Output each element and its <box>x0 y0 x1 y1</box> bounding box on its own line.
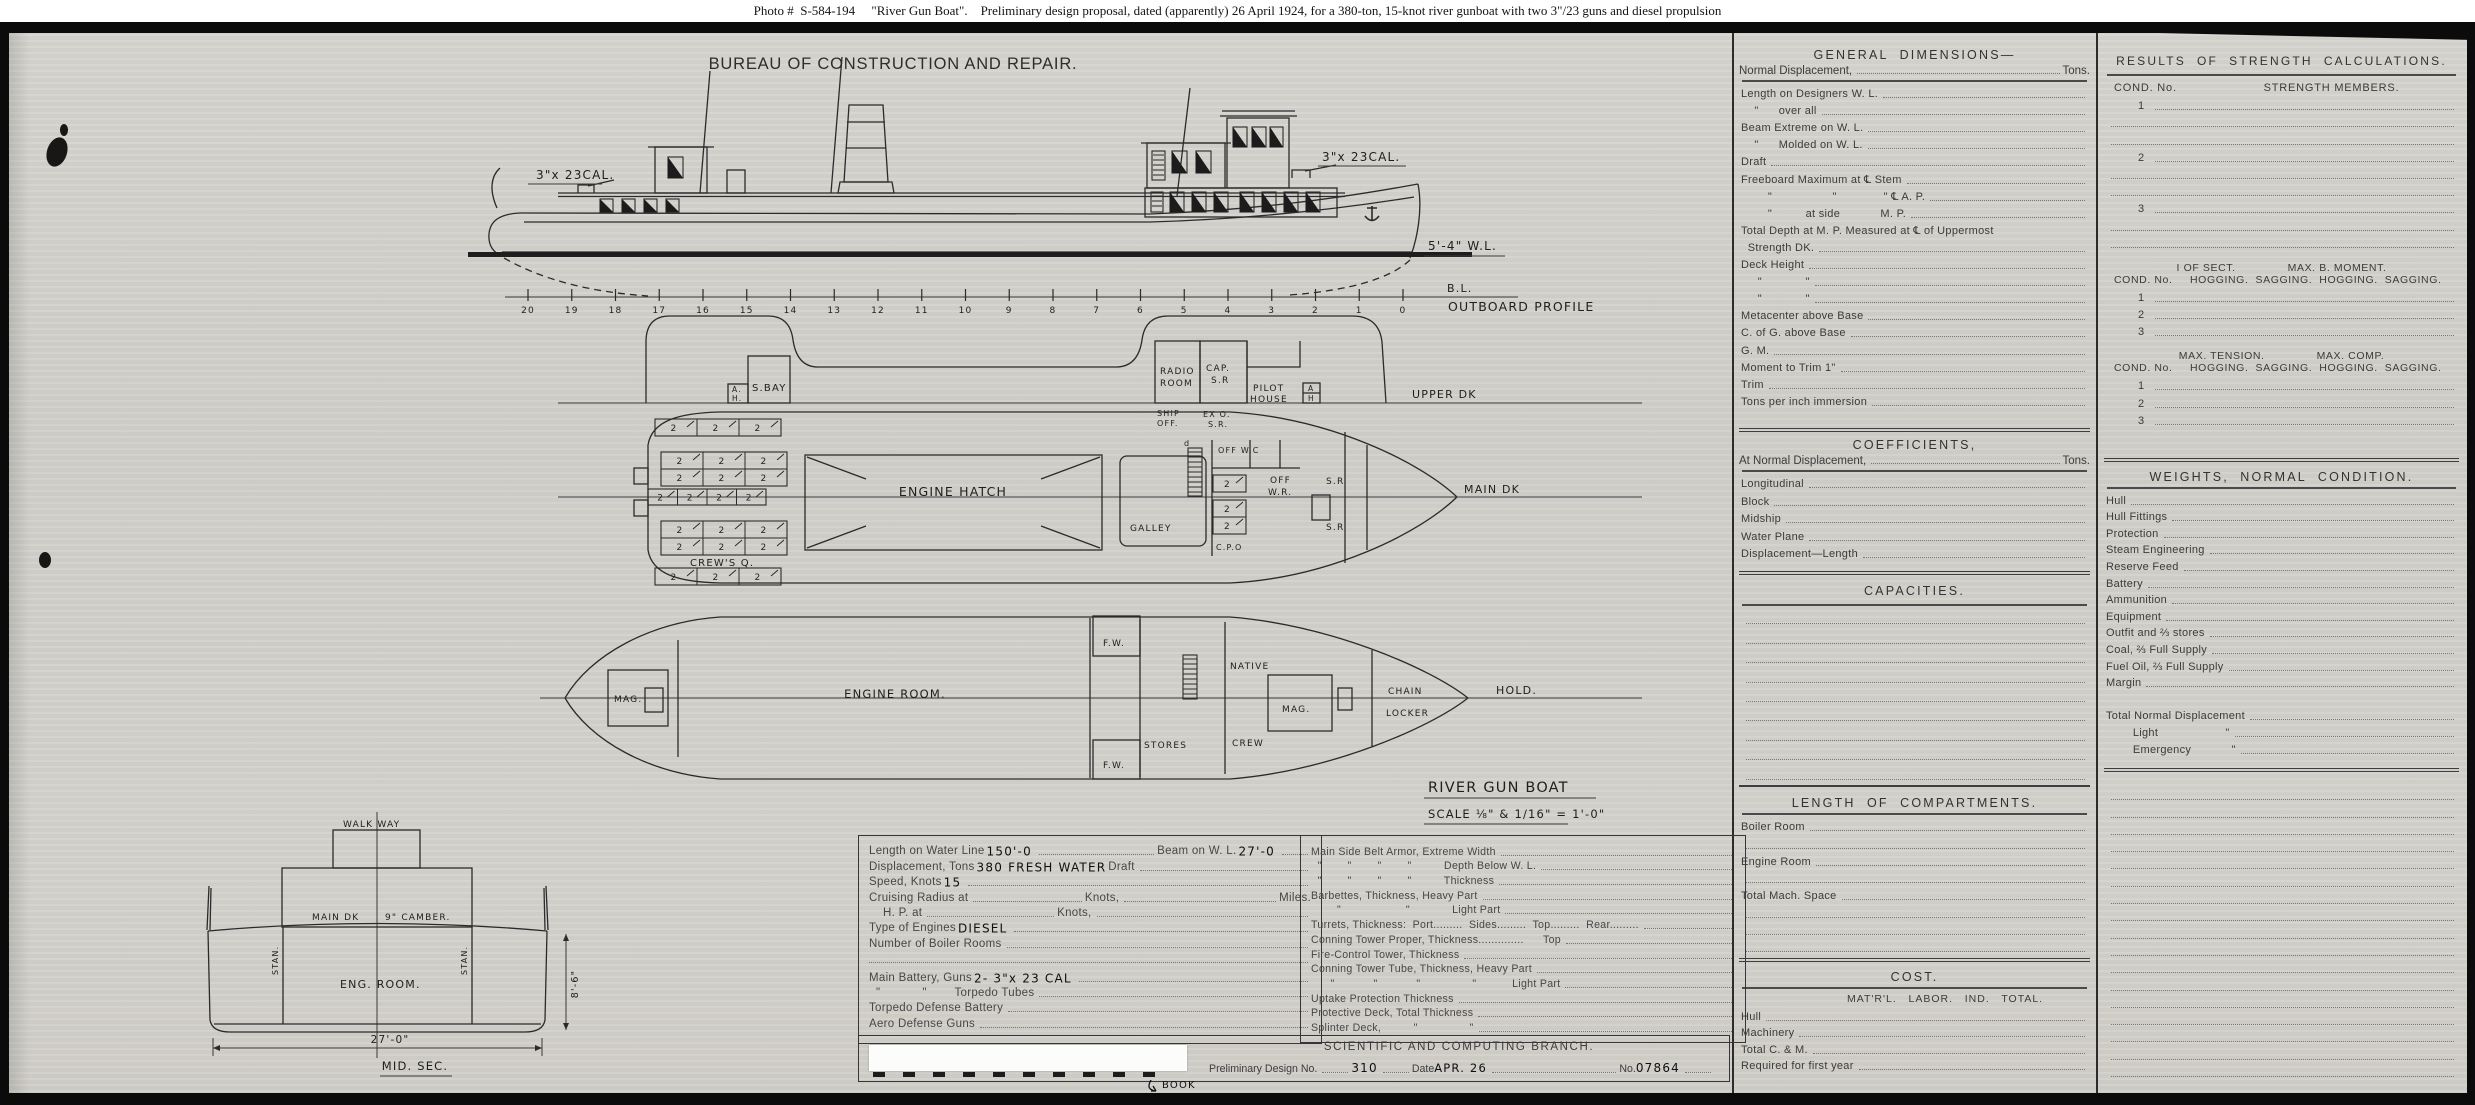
berth-mark: 2 <box>1224 505 1231 515</box>
blank-field <box>1644 928 1732 929</box>
form-row: Steam Engineering <box>2104 541 2459 558</box>
form-row: H. P. at Knots, <box>869 905 1311 920</box>
blank-field <box>1478 1016 1732 1017</box>
form-row: Uptake Protection Thickness <box>1309 991 1737 1006</box>
max-b-moment-header: MAX. B. MOMENT. <box>2288 262 2387 274</box>
book-note-text: BOOK <box>1162 1080 1196 1091</box>
max-tension-header: MAX. TENSION. <box>2179 350 2265 362</box>
field-label: Beam Extreme on W. L. <box>1741 122 1863 135</box>
form-row <box>2104 130 2459 147</box>
blank-field <box>1815 302 2085 303</box>
blank-field <box>1459 1002 1732 1003</box>
field-label: Speed, Knots <box>869 876 942 889</box>
blank-field <box>1771 165 2085 166</box>
station-number: 3 <box>1268 306 1275 316</box>
blank-field <box>2210 636 2454 637</box>
berth-mark: 2 <box>755 424 762 434</box>
ship-name: RIVER GUN BOAT <box>1428 780 1569 796</box>
hold-plan <box>540 616 1642 779</box>
field-label: Strength DK. <box>1741 242 1814 255</box>
blank-field <box>2111 817 2454 818</box>
panel-title: GENERAL DIMENSIONS— <box>1739 38 2090 62</box>
form-row: Turrets, Thickness: Port......... Sides.… <box>1309 917 1737 932</box>
berth-mark: 2 <box>713 424 720 434</box>
radio-room-label-2: ROOM <box>1160 379 1193 389</box>
form-row <box>2104 959 2459 976</box>
scan-blemishes <box>39 124 71 568</box>
blank-field <box>2111 144 2454 145</box>
hand-drawn-arrow-icon <box>1142 1080 1162 1095</box>
field-label: Margin <box>2106 677 2141 690</box>
form-row <box>1739 666 2090 685</box>
crew-label: CREW <box>1232 739 1264 749</box>
field-label: Main Battery, Guns <box>869 972 972 985</box>
form-row <box>2104 1063 2459 1080</box>
captain-stateroom-label-1: CAP. <box>1206 364 1230 374</box>
field-label: Number of Boiler Rooms <box>869 938 1002 951</box>
blank-field <box>2111 990 2454 991</box>
form-row: " " Torpedo Tubes <box>869 985 1311 1000</box>
ship-office-label-2: OFF. <box>1157 419 1179 428</box>
blank-field <box>2111 1041 2454 1042</box>
field-label: " " Light Part <box>1311 904 1500 917</box>
blank-field <box>2111 230 2454 231</box>
form-row: Block <box>1739 491 2090 508</box>
panel-weights: WEIGHTS, NORMAL CONDITION. HullHull Fitt… <box>2104 462 2459 772</box>
form-row: Protection <box>2104 524 2459 541</box>
station-number: 11 <box>915 306 929 316</box>
form-row: Displacement, Tons 380 FRESH WATER Draft <box>869 858 1311 873</box>
field-label: Battery <box>2106 578 2143 591</box>
panel-title: COST. <box>1739 962 2090 984</box>
blank-field <box>2155 335 2454 336</box>
form-row <box>2104 216 2459 233</box>
station-ruler: 20191817161514131211109876543210 <box>521 289 1406 316</box>
blank-field <box>2210 553 2454 554</box>
field-label: 3 <box>2138 415 2150 428</box>
blank-field <box>2250 719 2454 720</box>
blank-field <box>2155 212 2454 213</box>
field-label: Fuel Oil, ⅔ Full Supply <box>2106 661 2224 674</box>
field-label: Midship <box>1741 513 1781 526</box>
walkway-label: WALK WAY <box>343 820 400 830</box>
scale-note: SCALE ⅛" & 1/16" = 1'-0" <box>1428 807 1605 821</box>
blank-field <box>1851 336 2085 337</box>
station-number: 13 <box>827 306 841 316</box>
field-label: " " " " Light Part <box>1311 978 1560 991</box>
form-row: Metacenter above Base <box>1739 306 2090 323</box>
field-label: Draft <box>1108 861 1134 874</box>
galley-label: GALLEY <box>1130 524 1172 534</box>
stanchion-label-left: STAN. <box>271 946 280 975</box>
field-label: Knots, <box>1057 907 1091 920</box>
blank-field <box>2155 161 2454 162</box>
field-label: 2 <box>2138 309 2150 322</box>
chain-locker-label-1: CHAIN <box>1388 687 1423 697</box>
form-row: Length on Designers W. L. <box>1739 84 2090 101</box>
station-number: 18 <box>609 306 623 316</box>
photo-border-right <box>2467 22 2475 1105</box>
form-row <box>2104 1045 2459 1062</box>
field-value: DIESEL <box>956 922 1009 936</box>
form-row <box>2104 976 2459 993</box>
berth-mark: 2 <box>1224 522 1231 532</box>
blank-field <box>2212 653 2454 654</box>
berth-mark: 2 <box>657 494 664 504</box>
station-number: 4 <box>1225 306 1232 316</box>
baseline-label: B.L. <box>1447 282 1472 295</box>
form-row: 3 <box>2104 411 2459 428</box>
form-row: Battery <box>2104 574 2459 591</box>
main-deck-label: MAIN DK <box>1464 483 1520 496</box>
ah-label-bottom: H. <box>732 394 742 403</box>
blank-field <box>1746 759 2085 760</box>
berth-mark: 2 <box>677 526 684 536</box>
midship-section <box>207 812 569 1058</box>
field-label: Cruising Radius at <box>869 892 968 905</box>
panel-title: LENGTH OF COMPARTMENTS. <box>1739 788 2090 810</box>
form-row: Engine Room <box>1739 852 2090 869</box>
form-row <box>2104 803 2459 820</box>
form-row: " " <box>1739 272 2090 289</box>
form-row <box>2104 1011 2459 1028</box>
blank-field <box>1769 388 2085 389</box>
panel-title: CAPACITIES. <box>1739 575 2090 598</box>
berth-mark: 2 <box>713 573 720 583</box>
form-row <box>1739 686 2090 705</box>
sickbay-label: S.BAY <box>752 383 787 394</box>
form-row: Aero Defense Guns <box>869 1015 1311 1030</box>
form-row: Total Mach. Space <box>1739 886 2090 903</box>
form-row <box>2104 182 2459 199</box>
field-value: 380 FRESH WATER <box>975 860 1109 874</box>
form-row: " " " ℄ A. P. <box>1739 187 2090 204</box>
berth-mark: 2 <box>671 424 678 434</box>
blank-field <box>2111 1007 2454 1008</box>
station-number: 16 <box>696 306 710 316</box>
form-row: " " " " Thickness <box>1309 873 1737 888</box>
form-row <box>2104 165 2459 182</box>
blank-field <box>1483 899 1732 900</box>
berth-mark: 2 <box>687 494 694 504</box>
form-row: Main Battery, Guns 2- 3"x 23 CAL <box>869 969 1311 984</box>
pilot-house-label-2: HOUSE <box>1250 395 1288 405</box>
field-value: 150'-0 <box>985 845 1034 859</box>
field-label: Torpedo Defense Battery <box>869 1002 1003 1015</box>
form-row: Longitudinal <box>1739 474 2090 491</box>
blank-field <box>1813 1053 2085 1054</box>
field-label: " " " " Depth Below W. L. <box>1311 860 1536 873</box>
title-block: RIVER GUN BOAT SCALE ⅛" & 1/16" = 1'-0" <box>1424 780 1605 824</box>
blank-field <box>1766 1020 2085 1021</box>
blank-field <box>1537 972 1732 973</box>
fwd-gun-label: 3"x 23CAL. <box>1322 150 1400 164</box>
field-label: Barbettes, Thickness, Heavy Part <box>1311 890 1478 903</box>
station-number: 5 <box>1181 306 1188 316</box>
blank-field <box>1746 720 2085 721</box>
form-row: Deck Height <box>1739 255 2090 272</box>
panel-title: COEFFICIENTS, <box>1739 432 2090 452</box>
form-row: Barbettes, Thickness, Heavy Part <box>1309 888 1737 903</box>
form-row: Trim <box>1739 375 2090 392</box>
crews-quarters-label: CREW'S Q. <box>690 558 754 569</box>
form-row: Margin <box>2104 674 2459 691</box>
field-label: Length on Designers W. L. <box>1741 88 1878 101</box>
blank-note-rows <box>2104 774 2459 1080</box>
blank-field <box>1746 740 2085 741</box>
cond-no-header: COND. No. <box>2114 362 2173 374</box>
field-label: Displacement—Length <box>1741 548 1858 561</box>
blank-field <box>1799 1036 2085 1037</box>
capacities-rows <box>1739 608 2090 783</box>
field-label: Total Normal Displacement <box>2106 710 2245 723</box>
field-label: Aero Defense Guns <box>869 1018 975 1031</box>
form-row: Light " <box>2104 723 2459 740</box>
weights-rows: HullHull FittingsProtectionSteam Enginee… <box>2104 491 2459 757</box>
officers-wardroom-label-2: W.R. <box>1268 488 1292 498</box>
form-row: " " Light Part <box>1309 903 1737 918</box>
blank-field <box>1746 662 2085 663</box>
form-row <box>1739 744 2090 763</box>
form-row: Freeboard Maximum at ℄ Stem <box>1739 169 2090 186</box>
field-label: " " <box>1741 293 1810 306</box>
berth-mark: 2 <box>761 457 768 467</box>
fresh-water-label-bottom: F.W. <box>1103 761 1125 771</box>
field-label: Freeboard Maximum at ℄ Stem <box>1741 173 1902 187</box>
officers-wc-label: OFF W.C <box>1218 446 1260 455</box>
form-row <box>1739 903 2090 920</box>
field-label: " Molded on W. L. <box>1741 139 1863 152</box>
form-row: Speed, Knots 15 <box>869 874 1311 889</box>
form-row: Hull <box>2104 491 2459 508</box>
blank-field <box>2148 587 2454 588</box>
blank-field <box>1819 251 2085 252</box>
stateroom-label-bottom: S.R <box>1326 523 1344 533</box>
form-row: Main Side Belt Armor, Extreme Width <box>1309 844 1737 859</box>
form-row: 1 <box>2104 288 2459 305</box>
cost-column-headers: MAT'R'L. LABOR. IND. TOTAL. <box>1739 993 2090 1005</box>
characteristics-box: Length on Water Line 150'-0 Beam on W. L… <box>858 835 1322 1044</box>
form-row <box>2104 872 2459 889</box>
form-row <box>1739 724 2090 743</box>
upper-deck-label: UPPER DK <box>1412 388 1477 401</box>
station-number: 8 <box>1050 306 1057 316</box>
section-rows: 123 <box>2104 288 2459 340</box>
blank-field <box>2155 318 2454 319</box>
field-label: 3 <box>2138 203 2150 216</box>
form-row: Beam Extreme on W. L. <box>1739 118 2090 135</box>
blank-field <box>2111 195 2454 196</box>
form-row <box>2104 907 2459 924</box>
field-label: Displacement, Tons <box>869 861 975 874</box>
prelim-design-label: Preliminary Design No. <box>1209 1063 1317 1075</box>
panel-length-of-compartments: LENGTH OF COMPARTMENTS. Boiler RoomEngin… <box>1739 788 2090 962</box>
blank-field <box>1822 114 2085 115</box>
form-row: Number of Boiler Rooms <box>869 935 1311 950</box>
photo-border-left <box>0 22 9 1105</box>
field-label: Fire-Control Tower, Thickness <box>1311 949 1459 962</box>
form-row: Fire-Control Tower, Thickness <box>1309 947 1737 962</box>
blank-field <box>2111 938 2454 939</box>
armor-box: Main Side Belt Armor, Extreme Width " " … <box>1300 835 1746 1043</box>
form-row: Outfit and ⅔ stores <box>2104 624 2459 641</box>
form-row: Ammunition <box>2104 591 2459 608</box>
berth-mark: 2 <box>671 573 678 583</box>
blank-field <box>1857 73 2059 74</box>
station-number: 14 <box>784 306 798 316</box>
form-row <box>1739 921 2090 938</box>
blank-field <box>1841 371 2085 372</box>
field-value: 15 <box>942 876 964 890</box>
form-row <box>1739 647 2090 666</box>
tension-rows: 123 <box>2104 376 2459 428</box>
cpo-label: C.P.O <box>1216 543 1243 552</box>
bureau-title: BUREAU OF CONSTRUCTION AND REPAIR. <box>709 55 1078 73</box>
form-row: Moment to Trim 1" <box>1739 358 2090 375</box>
blank-field <box>2111 955 2454 956</box>
berth-mark: 2 <box>719 543 726 553</box>
blank-field <box>1746 623 2085 624</box>
subtitle-unit: Tons. <box>2063 65 2091 77</box>
blank-field <box>1810 830 2085 831</box>
blank-field <box>1883 97 2085 98</box>
blank-field <box>2146 686 2454 687</box>
berth-mark: 2 <box>719 526 726 536</box>
form-row <box>1739 705 2090 724</box>
field-label: Ammunition <box>2106 594 2167 607</box>
field-label: " " " ℄ A. P. <box>1741 190 1925 204</box>
blank-field <box>2172 520 2454 521</box>
blank-field <box>2111 886 2454 887</box>
form-row: Cruising Radius at Knots, Miles. <box>869 889 1311 904</box>
station-number: 17 <box>652 306 666 316</box>
panel-capacities: CAPACITIES. <box>1739 575 2090 787</box>
prelim-design-number: 310 <box>1351 1061 1378 1075</box>
field-label: " " <box>1741 276 1810 289</box>
berth-mark: 2 <box>716 494 723 504</box>
blank-field <box>2155 301 2454 302</box>
field-label: " " " " Thickness <box>1311 875 1494 888</box>
blank-field <box>1816 865 2085 866</box>
engine-room-label: ENGINE ROOM. <box>844 687 946 701</box>
field-label: " over all <box>1741 105 1817 118</box>
blank-field <box>2111 920 2454 921</box>
blank-field <box>1541 869 1732 870</box>
blank-field <box>2111 247 2454 248</box>
form-row: Displacement—Length <box>1739 544 2090 561</box>
blank-field <box>1842 899 2085 900</box>
waterline-band <box>468 252 1472 257</box>
field-label: 1 <box>2138 380 2150 393</box>
blank-field <box>1774 354 2085 355</box>
blank-field <box>2111 178 2454 179</box>
form-row: Strength DK. <box>1739 238 2090 255</box>
berth-mark: 2 <box>719 457 726 467</box>
redaction-box <box>869 1045 1187 1071</box>
form-row: Midship <box>1739 509 2090 526</box>
midship-section-label: MID. SEC. <box>382 1059 449 1073</box>
blank-field <box>2111 1059 2454 1060</box>
field-label: 2 <box>2138 398 2150 411</box>
blank-field <box>1786 522 2085 523</box>
berth-mark: 2 <box>761 526 768 536</box>
field-label: " " Torpedo Tubes <box>869 987 1034 1000</box>
upper-deck-labels: A. H. S.BAY RADIO ROOM SHIP OFF. CAP. S.… <box>732 364 1477 429</box>
field-value: 2- 3"x 23 CAL <box>972 971 1074 985</box>
berth-mark: 2 <box>719 474 726 484</box>
form-row: Type of Engines DIESEL <box>869 920 1311 935</box>
cond-no-header: COND. No. <box>2114 274 2173 286</box>
form-row <box>2104 234 2459 251</box>
blank-field <box>1809 540 2085 541</box>
form-row <box>2104 942 2459 959</box>
berth-mark: 2 <box>677 543 684 553</box>
field-label: Metacenter above Base <box>1741 310 1863 323</box>
station-number: 9 <box>1006 306 1013 316</box>
blank-field <box>1746 643 2085 644</box>
camber-label: 9" CAMBER. <box>385 913 451 923</box>
fresh-water-label-top: F.W. <box>1103 639 1125 649</box>
form-row: Emergency " <box>2104 740 2459 757</box>
field-label: Outfit and ⅔ stores <box>2106 627 2205 640</box>
fwd-magazine-label: MAG. <box>1282 705 1310 715</box>
field-label: Protection <box>2106 528 2159 541</box>
form-row: Torpedo Defense Battery <box>869 1000 1311 1015</box>
chain-locker-label-2: LOCKER <box>1386 709 1429 719</box>
station-number: 1 <box>1356 306 1363 316</box>
field-label: 3 <box>2138 326 2150 339</box>
field-label: Equipment <box>2106 611 2161 624</box>
blank-field <box>1868 319 2085 320</box>
register-no-value: 07864 <box>1636 1061 1680 1075</box>
compartments-rows: Boiler RoomEngine RoomTotal Mach. Space <box>1739 817 2090 955</box>
scanned-drawing-page: Photo # S-584-194 "River Gun Boat". Prel… <box>0 0 2475 1105</box>
strength-members-header: STRENGTH MEMBERS. <box>2204 82 2459 94</box>
field-label: Splinter Deck, " " <box>1311 1022 1474 1035</box>
stanchion-label-right: STAN. <box>460 946 469 975</box>
form-row <box>2104 994 2459 1011</box>
blank-field <box>1746 917 2085 918</box>
panel-cost: COST. MAT'R'L. LABOR. IND. TOTAL. HullMa… <box>1739 962 2090 1080</box>
field-label: Knots, <box>1085 892 1119 905</box>
form-row: Machinery <box>1739 1024 2090 1041</box>
blank-field <box>1501 855 1732 856</box>
blank-field <box>2111 126 2454 127</box>
blank-field <box>2111 834 2454 835</box>
field-label: Required for first year <box>1741 1060 1854 1073</box>
form-row: Total Normal Displacement <box>2104 707 2459 724</box>
exec-stateroom-label-2: S.R. <box>1208 420 1228 429</box>
form-row <box>2104 924 2459 941</box>
field-label: Tons per inch immersion <box>1741 396 1867 409</box>
form-row: Conning Tower Tube, Thickness, Heavy Par… <box>1309 962 1737 977</box>
blank-field <box>2111 1076 2454 1077</box>
cost-rows: HullMachineryTotal C. & M.Required for f… <box>1739 1007 2090 1073</box>
station-number: 19 <box>565 306 579 316</box>
ah-label-top: A. <box>732 385 742 394</box>
blank-field <box>1746 701 2085 702</box>
blank-field <box>2241 753 2454 754</box>
general-dimensions-rows: Length on Designers W. L. " over allBeam… <box>1739 84 2090 409</box>
form-row: 2 <box>2104 148 2459 165</box>
field-label: Total Depth at M. P. Measured at ℄ of Up… <box>1741 224 1994 238</box>
panel-title: RESULTS OF STRENGTH CALCULATIONS. <box>2104 38 2459 68</box>
hold-label: HOLD. <box>1496 684 1537 697</box>
panel-coefficients: COEFFICIENTS, At Normal Displacement, To… <box>1739 432 2090 575</box>
form-row: Reserve Feed <box>2104 557 2459 574</box>
blank-field <box>2131 504 2454 505</box>
subtitle-unit: Tons. <box>2063 455 2091 467</box>
